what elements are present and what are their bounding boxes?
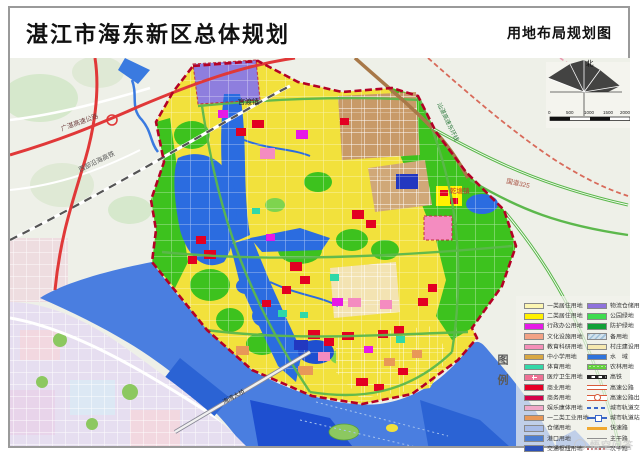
label-town-qiantang: 乾塘镇 (450, 186, 470, 195)
legend-item: 体育用地 (524, 362, 596, 372)
legend-item: 农林用地 (587, 362, 640, 372)
legend-item-label: 公园绿地 (610, 312, 634, 321)
legend-item-label: 仓储用地 (547, 424, 571, 433)
legend-item-label: 城市轨道站点 (610, 414, 640, 423)
compass-panel: 北 0 500 1000 1500 2000m (546, 59, 630, 128)
swatch-symbol (524, 344, 544, 351)
legend-item-label: 中小学用地 (547, 353, 577, 362)
legend-item-label: 水 域 (610, 353, 628, 362)
scale-unit: 2000m (620, 110, 630, 115)
page-subtitle: 用地布局规划图 (507, 23, 612, 43)
legend-item-label: 一类居住用地 (547, 302, 583, 311)
page-title: 湛江市海东新区总体规划 (26, 17, 290, 49)
legend-item-label: 娱乐康体用地 (547, 404, 583, 413)
legend-item: 一二类工业用地 (524, 413, 596, 423)
swatch-symbol (587, 303, 607, 310)
legend-item-label: 港口用地 (547, 434, 571, 443)
swatch-symbol (524, 323, 544, 330)
legend-item: 高速公路出入口 (587, 393, 640, 403)
legend-item-label: 高速公路 (610, 383, 634, 392)
legend-item: 高速公路 (587, 383, 640, 393)
legend-col-right: 物流仓储用地公园绿地防护绿地备用地村庄建设用地水 域农林用地高铁高速公路高速公路… (587, 301, 640, 454)
legend-title: 图例 (494, 354, 510, 394)
legend-item-label: 快速路 (610, 424, 628, 433)
double-line-symbol (587, 385, 607, 391)
legend-item: 城市轨道交通线 (587, 403, 640, 413)
swatch-symbol (524, 364, 544, 371)
legend-item-label: 体育用地 (547, 363, 571, 372)
scale-tick: 1000 (584, 110, 595, 115)
legend-item-label: 高铁 (610, 373, 622, 382)
legend-item: 城市轨道站点 (587, 413, 640, 423)
legend-item: 医疗卫生用地 (524, 372, 596, 382)
swatch-symbol (587, 354, 607, 361)
legend-item: 物流仓储用地 (587, 301, 640, 311)
swatch-symbol (524, 395, 544, 402)
legend-item-label: 行政办公用地 (547, 322, 583, 331)
watermark-logo-icon (574, 439, 586, 451)
legend-col-left: 一类居住用地二类居住用地行政办公用地文化设施用地教育科研用地中小学用地体育用地医… (524, 301, 596, 454)
swatch-symbol (587, 344, 607, 351)
legend-item-label: 防护绿地 (610, 322, 634, 331)
dash-symbol (587, 407, 607, 409)
legend-item-label: 教育科研用地 (547, 343, 583, 352)
legend-item: 商业用地 (524, 383, 596, 393)
swatch-symbol (524, 354, 544, 361)
swatch-symbol (524, 425, 544, 432)
north-label: 北 (586, 59, 594, 68)
swatch-symbol (524, 445, 544, 452)
legend-item: 教育科研用地 (524, 342, 596, 352)
swatch-symbol (587, 313, 607, 320)
interchange-symbol (587, 395, 607, 401)
line-symbol (587, 427, 607, 429)
cross-symbol (524, 374, 544, 381)
legend-item: 一类居住用地 (524, 301, 596, 311)
scale-tick: 500 (566, 110, 574, 115)
legend-item-label: 村庄建设用地 (610, 343, 640, 352)
legend-item-label: 农林用地 (610, 363, 634, 372)
swatch-symbol (524, 303, 544, 310)
legend-item-label: 医疗卫生用地 (547, 373, 583, 382)
swatch-symbol (524, 384, 544, 391)
watermark: 悟空问答 (574, 437, 634, 452)
rail-symbol (587, 375, 607, 379)
swatch-symbol (524, 435, 544, 442)
legend-item-label: 一二类工业用地 (547, 414, 589, 423)
swatch-symbol (524, 333, 544, 340)
legend-item: 村庄建设用地 (587, 342, 640, 352)
legend-item: 行政办公用地 (524, 321, 596, 331)
header: 湛江市海东新区总体规划 用地布局规划图 (10, 8, 628, 58)
hatch-symbol (587, 333, 607, 340)
page: 湛江市海东新区总体规划 用地布局规划图 (0, 0, 640, 456)
legend-item: 商务用地 (524, 393, 596, 403)
station-symbol (587, 417, 607, 419)
legend-item: 备用地 (587, 332, 640, 342)
swatch-symbol (524, 415, 544, 422)
dots-symbol (587, 364, 607, 371)
legend-item-label: 商业用地 (547, 383, 571, 392)
swatch-symbol (524, 405, 544, 412)
legend-item-label: 高速公路出入口 (610, 394, 640, 403)
watermark-text: 悟空问答 (590, 437, 634, 452)
legend-item-label: 物流仓储用地 (610, 302, 640, 311)
legend-item-label: 二类居住用地 (547, 312, 583, 321)
legend-item: 二类居住用地 (524, 311, 596, 321)
scale-tick: 1500 (603, 110, 614, 115)
legend-item: 文化设施用地 (524, 332, 596, 342)
legend-item: 水 域 (587, 352, 640, 362)
label-town-guandu: 官渡镇 (238, 97, 259, 106)
swatch-symbol (524, 313, 544, 320)
legend-item: 仓储用地 (524, 423, 596, 433)
legend-item: 防护绿地 (587, 321, 640, 331)
legend-item-label: 备用地 (610, 332, 628, 341)
legend-item: 快速路 (587, 423, 640, 433)
legend-item: 公园绿地 (587, 311, 640, 321)
legend-item: 娱乐康体用地 (524, 403, 596, 413)
legend-item-label: 商务用地 (547, 394, 571, 403)
legend-item-label: 文化设施用地 (547, 332, 583, 341)
legend-item-label: 城市轨道交通线 (610, 404, 640, 413)
legend-item: 高铁 (587, 372, 640, 382)
legend-item: 中小学用地 (524, 352, 596, 362)
swatch-symbol (587, 323, 607, 330)
